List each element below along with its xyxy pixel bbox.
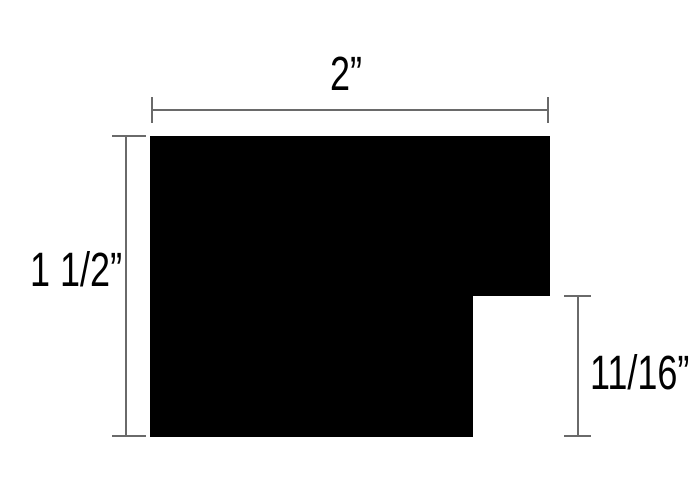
notch-dimension-line (577, 296, 579, 437)
profile-shape (150, 136, 550, 437)
width-dimension-right-tick (547, 97, 549, 123)
height-dimension-label: 1 1/2” (30, 247, 120, 295)
height-dimension-top-cap (112, 135, 146, 137)
height-dimension-line (125, 136, 127, 437)
diagram-canvas: 2” 1 1/2” 11/16” (0, 0, 700, 500)
width-dimension-line (152, 109, 548, 111)
notch-dimension-top-cap (564, 295, 591, 297)
width-dimension-label: 2” (271, 51, 421, 99)
height-dimension-bottom-cap (112, 435, 146, 437)
notch-dimension-label: 11/16” (590, 350, 689, 398)
width-dimension-left-tick (151, 97, 153, 123)
notch-dimension-bottom-cap (564, 435, 591, 437)
